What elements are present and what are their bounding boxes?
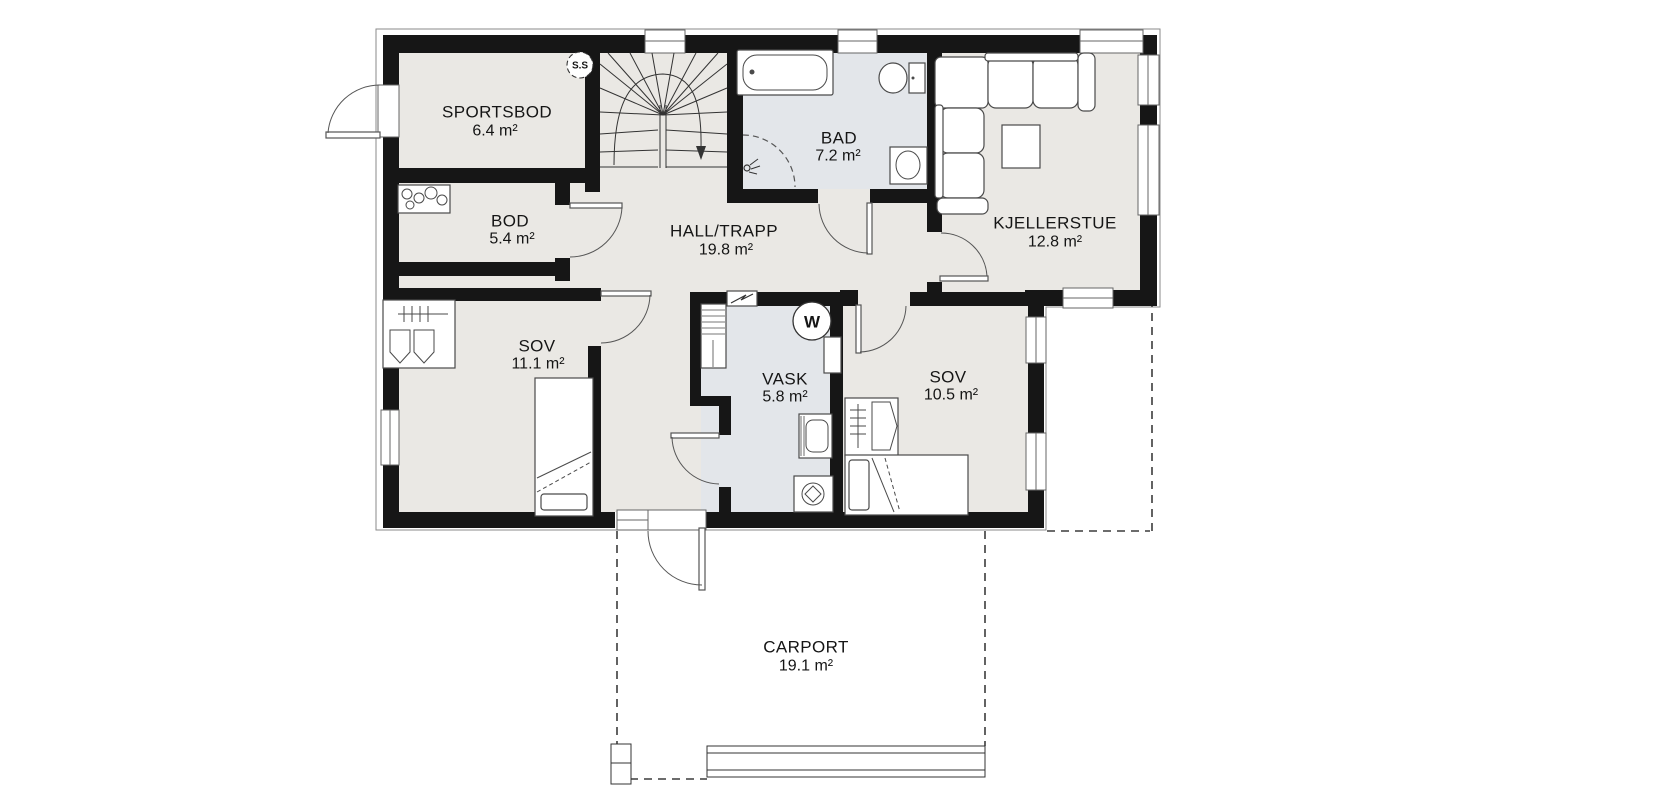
label-sportsbod: SPORTSBOD [442, 103, 552, 122]
area-bad: 7.2 m² [815, 148, 861, 165]
window-kjellerstue-top [1080, 30, 1143, 53]
water-heater-label: W [804, 313, 821, 332]
fuse-box-icon: S.S [567, 52, 593, 78]
electrical-panel-icon [727, 291, 757, 306]
bed-sov1 [535, 378, 593, 516]
area-sov1: 11.1 m² [511, 356, 565, 373]
area-bod: 5.4 m² [489, 231, 535, 248]
wardrobe-sov1 [383, 300, 455, 368]
washing-machine-bad [890, 147, 927, 184]
label-vask: VASK [762, 370, 808, 389]
label-sov2: SOV [929, 368, 966, 387]
carport-post [611, 763, 631, 784]
door-entrance [648, 510, 706, 590]
bathtub [737, 50, 833, 95]
window-sov2-right-2 [1026, 433, 1046, 490]
window-sov2-right-1 [1026, 317, 1046, 363]
window-sov1-left [381, 410, 399, 465]
window-kjellerstue-right-2 [1138, 125, 1159, 215]
door-sportsbod-exterior [326, 85, 399, 138]
closet-vask [701, 304, 726, 368]
area-sportsbod: 6.4 m² [472, 123, 518, 140]
bod-appliance [398, 185, 450, 213]
floor-plan-page: W S.S SPORTSBOD 6.4 m² BOD 5.4 m² HALL/T… [0, 0, 1670, 800]
carport-beam [707, 746, 985, 777]
floor-plan-canvas: W S.S SPORTSBOD 6.4 m² BOD 5.4 m² HALL/T… [0, 0, 1670, 800]
label-sov1: SOV [518, 337, 555, 356]
area-sov2: 10.5 m² [924, 387, 979, 404]
window-bath-top [838, 30, 877, 53]
label-hall-trapp: HALL/TRAPP [670, 222, 778, 241]
area-carport: 19.1 m² [779, 658, 834, 675]
area-kjellerstue: 12.8 m² [1028, 234, 1083, 251]
toilet [879, 63, 925, 93]
window-entry-sidelight [617, 510, 648, 530]
water-heater-icon: W [793, 302, 831, 340]
wall-cabinet [824, 337, 841, 373]
fuse-box-label: S.S [572, 61, 588, 72]
window-kjellerstue-bottom [1063, 288, 1113, 308]
label-kjellerstue: KJELLERSTUE [993, 214, 1116, 233]
label-carport: CARPORT [763, 638, 849, 657]
bed-sov2 [845, 455, 968, 515]
label-bad: BAD [821, 129, 857, 148]
coffee-table [1002, 125, 1040, 168]
area-vask: 5.8 m² [762, 389, 808, 406]
window-kjellerstue-right-1 [1138, 55, 1159, 105]
label-bod: BOD [491, 212, 529, 231]
area-hall-trapp: 19.8 m² [699, 242, 754, 259]
window-stair-top [645, 30, 685, 53]
washing-machine-vask [799, 414, 832, 458]
floor-drain-icon [794, 476, 833, 512]
wardrobe-sov2 [845, 398, 898, 456]
carport-post [611, 744, 631, 763]
